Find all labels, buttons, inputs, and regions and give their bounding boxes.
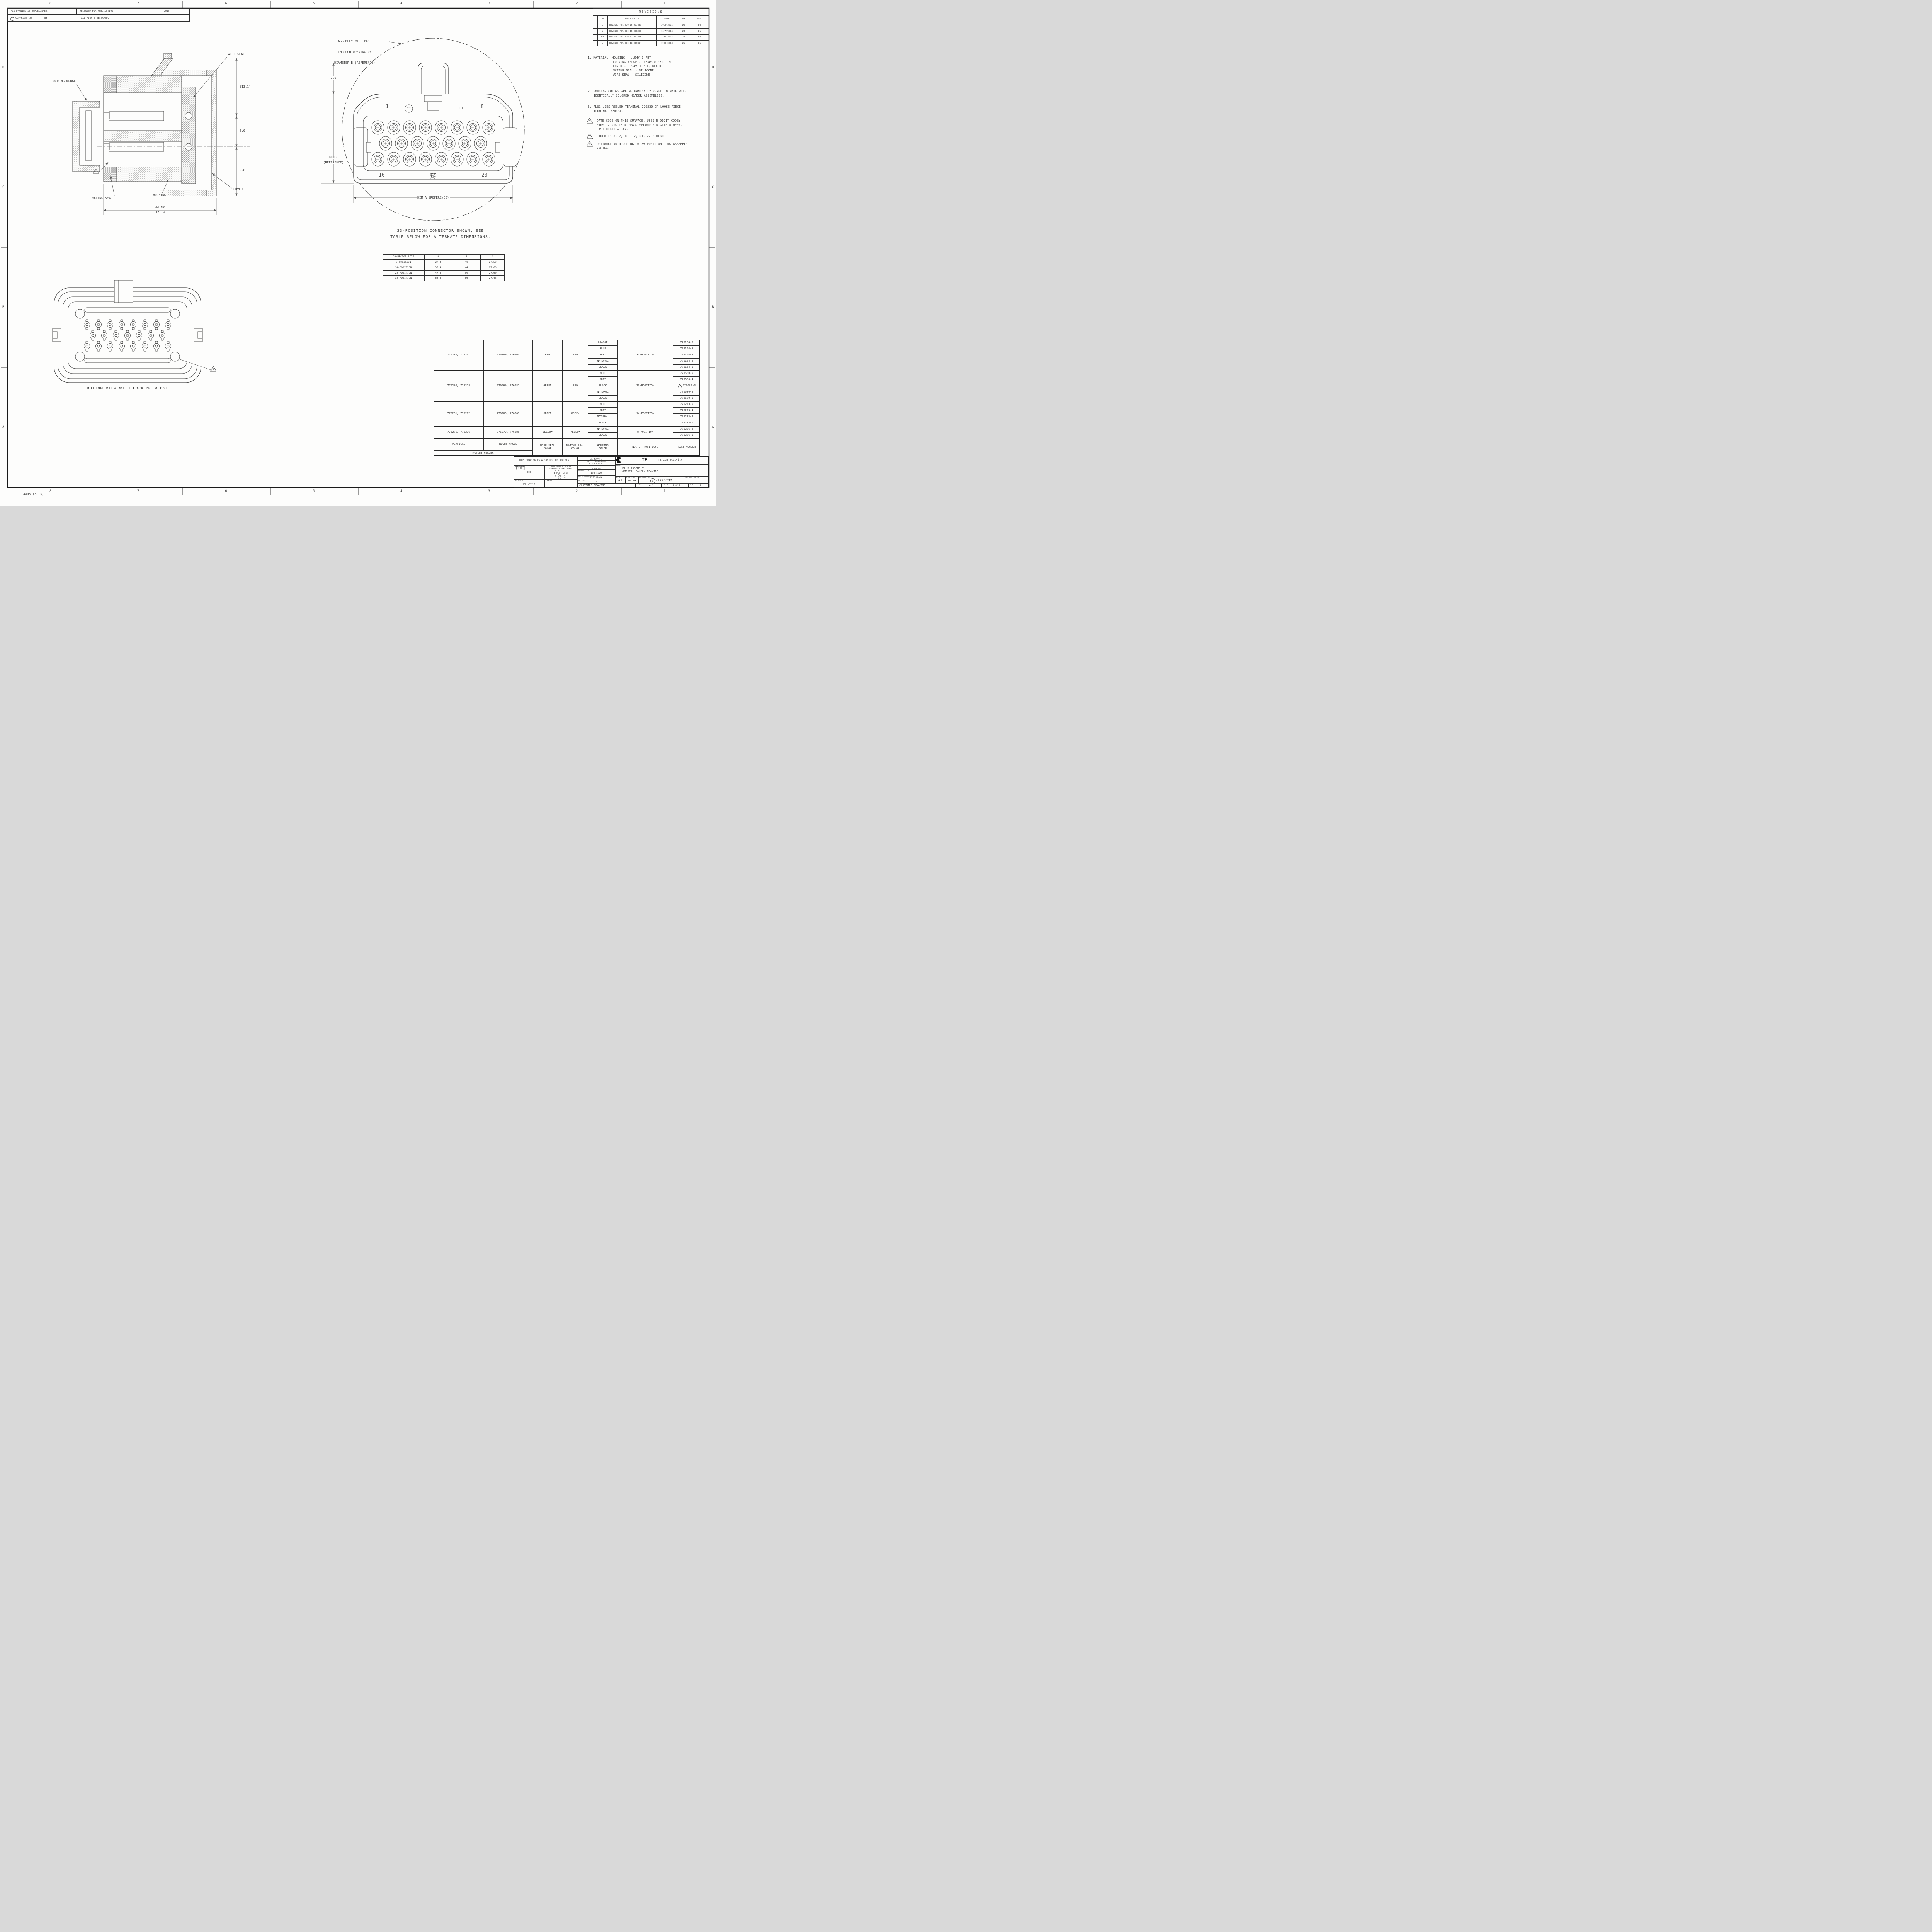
note-4-triangle-icon: 4 xyxy=(587,118,593,124)
parts-wire-seal: GREEN xyxy=(532,371,563,401)
housing-color: GREY xyxy=(588,408,617,414)
dim-a-label: DIM A (REFERENCE) xyxy=(417,196,450,199)
copyright-cell: C COPYRIGHT 20 BY - ALL RIGHTS RESERVED. xyxy=(7,15,190,22)
zone-top-5: 5 xyxy=(313,2,315,5)
drawing-no-cell: DRAWING NO C -2293782 xyxy=(638,477,684,484)
note-line: 1. MATERIAL: HOUSING - UL94V-0 PBT xyxy=(588,56,651,60)
part-number: 770680-4 xyxy=(673,377,700,383)
zone-top-6: 6 xyxy=(225,2,227,5)
revision-apvd: DS xyxy=(690,22,709,28)
parts-right-angle: 776279, 776280 xyxy=(484,426,532,439)
material-cell: MATERIAL - SEE NOTE 1 xyxy=(514,479,544,488)
part-number: 776164-6 xyxy=(673,340,700,346)
revision-description: REVISED PER ECO-15-017333 xyxy=(607,22,657,28)
parts-wire-seal: GREEN xyxy=(532,401,563,426)
note-6-triangle-icon: 6 xyxy=(587,141,593,147)
parts-right-angle: 776266, 776267 xyxy=(484,401,532,426)
part-number: 770680-2 xyxy=(673,389,700,395)
part-number: 776286-1 xyxy=(673,432,700,439)
part-number: 776164-4 xyxy=(673,352,700,358)
released-label: RELEASED FOR PUBLICATION xyxy=(80,10,113,13)
revisions-title: REVISIONS xyxy=(593,8,709,16)
csa-logo-icon: CSA xyxy=(407,107,410,109)
note-line: TERMINAL 770854. xyxy=(594,109,623,113)
zone-bottom-1: 1 xyxy=(663,489,665,493)
zone-top-7: 7 xyxy=(137,2,139,5)
customer-drawing-cell: CUSTOMER DRAWING xyxy=(577,484,636,488)
part-number: 776273-4 xyxy=(673,408,700,414)
dwn-cell: DWN11JUN2015 A. MARTIN xyxy=(577,456,615,461)
te-logo: TE xyxy=(642,457,647,463)
parts-note-5-triangle-icon: 5 xyxy=(678,384,682,388)
dim-32-10: 32.10 xyxy=(155,211,165,214)
zone-right-b: B xyxy=(712,305,714,309)
bottom-note-6-triangle-icon: 6 xyxy=(210,366,216,372)
dim-9-8: 9.8 xyxy=(240,168,245,172)
parts-vertical: 776275, 776276 xyxy=(434,426,484,439)
copyright-text: COPYRIGHT 20 xyxy=(15,17,32,20)
drawing-sheet: 8 7 6 5 4 3 2 1 8 7 6 5 4 3 2 1 D C B A … xyxy=(0,0,716,506)
housing-color: BLACK xyxy=(588,420,617,426)
revision-date: 19DEC2018 xyxy=(657,40,677,46)
copyright-by: BY - xyxy=(44,17,50,20)
revision-dwn: DD xyxy=(677,22,690,28)
dim-13-1: (13.1) xyxy=(240,85,251,88)
size-row-c: 27.45 xyxy=(481,276,505,281)
size-row-b: 66 xyxy=(452,276,481,281)
unpublished-note: THIS DRAWING IS UNPUBLISHED. xyxy=(7,8,76,15)
note-line: LOCKING WEDGE - UL94V-0 PBT, RED xyxy=(613,60,672,64)
note-line: MATING SEAL - SILICONE xyxy=(613,69,654,72)
view-caption-line2: TABLE BELOW FOR ALTERNATE DIMENSIONS. xyxy=(390,235,491,240)
revision-date: 29DEC2015 xyxy=(657,22,677,28)
dim-33-60: 33.60 xyxy=(155,205,165,209)
housing-color: BLUE xyxy=(588,371,617,377)
note-line: DATE CODE ON THIS SURFACE. USES 5 DIGIT … xyxy=(597,119,680,122)
application-spec-cell: APPLICATION SPEC 114-16016 xyxy=(577,475,615,480)
parts-separator xyxy=(434,401,700,402)
note-line: IDENTICALLY COLORED HEADER ASSEMBLIES. xyxy=(594,94,664,97)
parts-mating-seal: RED xyxy=(563,340,588,371)
size-row-c: 27.50 xyxy=(481,260,505,265)
size-row-a: 47.4 xyxy=(424,270,452,276)
size-row-b: 50 xyxy=(452,270,481,276)
parts-positions: 8-POSITION xyxy=(617,426,673,439)
part-number-with-note: 5 770680-3 xyxy=(673,383,700,389)
part-number: 776164-5 xyxy=(673,346,700,352)
revision-ltr: D xyxy=(598,28,607,34)
zone-bottom-5: 5 xyxy=(313,489,315,493)
sheet-cell: SHEET 1 OF 2 xyxy=(662,484,689,488)
zone-bottom-8: 8 xyxy=(49,489,51,493)
part-number: 776164-1 xyxy=(673,364,700,371)
parts-vertical: 776230, 776231 xyxy=(434,340,484,371)
parts-positions: 35-POSITION xyxy=(617,340,673,371)
part-number: 776286-2 xyxy=(673,426,700,432)
te-logo-bars-icon xyxy=(430,173,435,179)
restricted-cell: RESTRICTED TO - xyxy=(684,477,709,484)
scale-cell: SCALE 4:1 xyxy=(636,484,662,488)
size-row-name: 14-POSITION xyxy=(383,265,424,270)
revision-apvd: DS xyxy=(690,34,709,40)
note-line: COVER - UL94V-0 PBT, BLACK xyxy=(613,65,661,68)
logo-cell: TE TE Connectivity xyxy=(615,456,709,464)
housing-color: BLACK xyxy=(588,395,617,401)
chk-cell: CHK29JUN2015 D STRAUSSER xyxy=(577,461,615,465)
parts-mating-seal: GREEN xyxy=(563,401,588,426)
footer-wire-seal-color: WIRE SEALCOLOR xyxy=(532,439,563,456)
pin-16-label: 16 xyxy=(379,173,385,179)
dim-8-0: 8.0 xyxy=(240,129,245,133)
housing-color: GREY xyxy=(588,377,617,383)
note-line: LAST DIGIT = DAY. xyxy=(597,128,628,131)
size-row-a: 27.4 xyxy=(424,260,452,265)
parts-right-angle: 770669, 776087 xyxy=(484,371,532,401)
footer-mating-header: MATING HEADER xyxy=(434,450,532,456)
revisions-header-dwn: DWN xyxy=(677,16,690,22)
weight-cell: WEIGHT - xyxy=(577,480,615,484)
parts-separator xyxy=(434,438,700,439)
revision-dwn: DD xyxy=(677,28,690,34)
part-number: 776273-2 xyxy=(673,414,700,420)
assembly-note: ASSEMBLY WILL PASS THROUGH OPENING OF DI… xyxy=(320,32,389,68)
pin-23-label: 23 xyxy=(481,173,488,179)
revision-description: REVISED PER ECO-17-007878 xyxy=(607,34,657,40)
zone-top-8: 8 xyxy=(49,2,51,5)
part-number: 770680-5 xyxy=(673,371,700,377)
wire-seal-label: WIRE SEAL xyxy=(228,53,245,56)
note-line: WIRE SEAL - SILICONE xyxy=(613,73,650,77)
footer-right-angle: RIGHT-ANGLE xyxy=(484,439,532,450)
revision-row-flag xyxy=(593,40,598,46)
form-number: 4805 (3/13) xyxy=(23,492,44,496)
footer-part-number: PART NUMBER xyxy=(673,439,700,456)
zone-bottom-3: 3 xyxy=(488,489,490,493)
note-5-triangle-icon: 5 xyxy=(587,134,593,139)
housing-color: NATURAL xyxy=(588,426,617,432)
cover-label: COVER xyxy=(233,187,243,191)
size-table-header-a: A xyxy=(424,254,452,260)
housing-color: BLUE xyxy=(588,401,617,408)
zone-left-a: A xyxy=(2,425,4,429)
pin-8-label: 8 xyxy=(481,104,484,110)
parts-vertical: 776200, 776228 xyxy=(434,371,484,401)
housing-label: HOUSING xyxy=(153,193,166,197)
parts-right-angle: 776180, 776163 xyxy=(484,340,532,371)
housing-color: NATURAL xyxy=(588,358,617,364)
company-name: TE Connectivity xyxy=(658,459,682,462)
revisions-header-flag xyxy=(593,16,598,22)
section-note-4-triangle-icon: 4 xyxy=(93,169,99,174)
apvd-cell: APVD29JUN2015 G BROWN xyxy=(577,465,615,470)
housing-color: NATURAL xyxy=(588,389,617,395)
note-line: 2. HOUSING COLORS ARE MECHANICALLY KEYED… xyxy=(588,90,686,93)
drawing-prefix-circle: C xyxy=(650,478,655,483)
product-spec-cell: PRODUCT SPEC 108-1329 xyxy=(577,470,615,475)
name-cell: NAME PLUG ASSEMBLY, AMPSEAL FAMILY DRAWI… xyxy=(615,464,709,477)
zone-top-2: 2 xyxy=(576,2,578,5)
controlled-document-note: THIS DRAWING IS A CONTROLLED DOCUMENT. xyxy=(514,456,577,465)
revision-ltr: E xyxy=(598,40,607,46)
size-row-name: 35-POSITION xyxy=(383,276,424,281)
view-caption-line1: 23-POSITION CONNECTOR SHOWN, SEE xyxy=(397,229,484,233)
revisions-header-ltr: LTR xyxy=(598,16,607,22)
rev-cell: REV E xyxy=(689,484,709,488)
size-cell: SIZE A1 xyxy=(615,477,625,484)
parts-positions: 23-POSITION xyxy=(617,371,673,401)
revisions-header-description: DESCRIPTION xyxy=(607,16,657,22)
size-table-header-c: C xyxy=(481,254,505,260)
zone-bottom-6: 6 xyxy=(225,489,227,493)
footer-mating-seal-color: MATING SEALCOLOR xyxy=(563,439,588,456)
te-logo-front: TE xyxy=(430,173,436,179)
ul-logo-icon: UL xyxy=(458,106,463,111)
mating-seal-label: MATING SEAL xyxy=(92,196,112,200)
revision-row-flag xyxy=(593,28,598,34)
size-table-header-size: CONNECTOR SIZE xyxy=(383,254,424,260)
size-row-c: 27.60 xyxy=(481,270,505,276)
footer-vertical: VERTICAL xyxy=(434,439,484,450)
revision-ltr: D1 xyxy=(598,34,607,40)
size-row-a: 63.4 xyxy=(424,276,452,281)
part-number: 776273-1 xyxy=(673,420,700,426)
revisions-header-date: DATE xyxy=(657,16,677,22)
parts-positions: 14-POSITION xyxy=(617,401,673,426)
zone-left-c: C xyxy=(2,185,4,189)
revision-row-flag xyxy=(593,22,598,28)
housing-color: NATURAL xyxy=(588,414,617,420)
revision-dwn: DS xyxy=(677,40,690,46)
parts-separator xyxy=(434,370,700,371)
parts-wire-seal: RED xyxy=(532,340,563,371)
cage-code-cell: CAGE CODE 00779 xyxy=(625,477,638,484)
revisions-header-apvd: APVD xyxy=(690,16,709,22)
size-row-c: 27.60 xyxy=(481,265,505,270)
copyright-symbol-icon: C xyxy=(10,17,14,21)
note-line: FIRST 2 DIGITS = YEAR, SECOND 2 DIGITS =… xyxy=(597,123,682,127)
zone-bottom-7: 7 xyxy=(137,489,139,493)
third-angle-projection-icon xyxy=(514,466,526,470)
bottom-view-caption: BOTTOM VIEW WITH LOCKING WEDGE xyxy=(87,386,168,391)
zone-right-c: C xyxy=(712,185,714,189)
zone-right-a: A xyxy=(712,425,714,429)
footer-positions: NO. OF POSITIONS xyxy=(617,439,673,456)
zone-left-b: B xyxy=(2,305,4,309)
zone-top-3: 3 xyxy=(488,2,490,5)
size-row-name: 8-POSITION xyxy=(383,260,424,265)
dim-c-label: DIM C xyxy=(328,156,339,159)
parts-mating-seal: YELLOW xyxy=(563,426,588,439)
part-number: 770680-1 xyxy=(673,395,700,401)
revision-date: 16MAY2016 xyxy=(657,28,677,34)
revision-description: REVISED PER ECO-18-019884 xyxy=(607,40,657,46)
rights-text: ALL RIGHTS RESERVED. xyxy=(81,17,109,20)
housing-color: GREY xyxy=(588,352,617,358)
released-year: 2015 xyxy=(164,10,169,13)
zone-right-d: D xyxy=(712,66,714,70)
finish-cell: FINISH - xyxy=(544,479,577,488)
size-row-a: 35.4 xyxy=(424,265,452,270)
size-table-header-b: B xyxy=(452,254,481,260)
zone-left-d: D xyxy=(2,66,4,70)
zone-top-4: 4 xyxy=(400,2,402,5)
housing-color: BLACK xyxy=(588,383,617,389)
parts-separator xyxy=(434,426,700,427)
revision-apvd: DS xyxy=(690,40,709,46)
size-row-name: 23-POSITION xyxy=(383,270,424,276)
note-line: CIRCUITS 3, 7, 16, 17, 21, 22 BLOCKED xyxy=(597,134,665,138)
te-logo-bars-icon xyxy=(616,456,622,463)
pin-1-label: 1 xyxy=(386,104,389,110)
locking-wedge-label: LOCKING WEDGE xyxy=(51,80,76,83)
note-line: OPTIONAL VOID CORING ON 35 POSITION PLUG… xyxy=(597,142,688,146)
size-row-b: 40 xyxy=(452,260,481,265)
note-line: 3. PLUG USES REELED TERMINAL 770520 OR L… xyxy=(588,105,681,109)
parts-wire-seal: YELLOW xyxy=(532,426,563,439)
dim-7-0: 7.0 xyxy=(330,76,337,80)
zone-top-1: 1 xyxy=(663,2,665,5)
tolerances-cell: TOLERANCES UNLESS OTHERWISE SPECIFIED: 0… xyxy=(544,465,577,479)
revision-apvd: DS xyxy=(690,28,709,34)
revision-description: REVISED PER ECO-16-006990 xyxy=(607,28,657,34)
parts-mating-seal: RED xyxy=(563,371,588,401)
parts-vertical: 776261, 776262 xyxy=(434,401,484,426)
zone-bottom-4: 4 xyxy=(400,489,402,493)
housing-color: ORANGE xyxy=(588,340,617,346)
footer-housing-color: HOUSINGCOLOR xyxy=(588,439,617,456)
dim-c-reference: (REFERENCE) xyxy=(323,161,345,164)
revision-dwn: JM xyxy=(677,34,690,40)
part-number: 776273-5 xyxy=(673,401,700,408)
housing-color: BLACK xyxy=(588,364,617,371)
housing-color: BLUE xyxy=(588,346,617,352)
released-cell: RELEASED FOR PUBLICATION 2015 xyxy=(76,8,190,15)
note-line: 776164. xyxy=(597,146,610,150)
size-row-b: 44 xyxy=(452,265,481,270)
zone-bottom-2: 2 xyxy=(576,489,578,493)
part-number: 776164-2 xyxy=(673,358,700,364)
revision-ltr: C xyxy=(598,22,607,28)
revision-date: 31MAY2017 xyxy=(657,34,677,40)
housing-color: BLACK xyxy=(588,432,617,439)
revision-row-flag xyxy=(593,34,598,40)
dimensions-cell: DIMENSIONS: mm xyxy=(514,465,544,479)
